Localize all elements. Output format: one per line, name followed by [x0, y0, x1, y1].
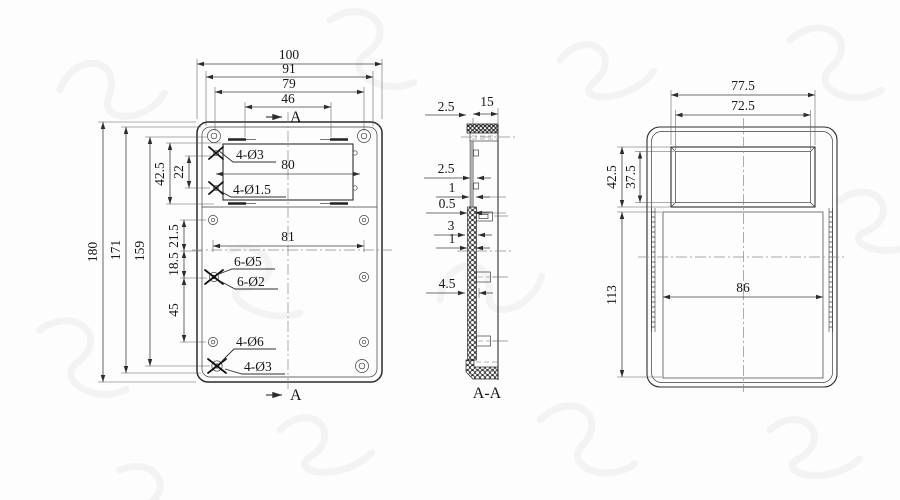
side-inner-dimension: 86 [663, 280, 823, 297]
dim-height-159: 159 [132, 241, 147, 262]
dim-step-1b: 1 [449, 231, 456, 246]
section-marker-top: A [266, 109, 302, 126]
section-letter-top: A [290, 109, 302, 126]
dim-77-5: 77.5 [731, 78, 755, 93]
side-left-dimensions: 42.5 37.5 113 [604, 147, 674, 377]
section-top-flange [467, 124, 498, 133]
dim-width-91: 91 [282, 61, 296, 76]
dim-81: 81 [281, 229, 295, 244]
dim-80: 80 [281, 157, 295, 172]
section-marker-bottom: A [266, 387, 302, 404]
front-inner-left-dimensions: 42.5 22 21.5 18.5 45 [152, 143, 221, 342]
side-ribs-right [829, 208, 833, 332]
dim-rib-4-5: 4.5 [439, 276, 456, 291]
dim-side-86: 86 [736, 280, 750, 295]
dim-22: 22 [171, 165, 186, 179]
dim-height-171: 171 [108, 240, 123, 260]
dim-depth-15: 15 [480, 94, 494, 109]
front-left-dimensions: 180 171 159 [85, 122, 210, 382]
side-top-dimensions: 77.5 72.5 [671, 78, 815, 150]
drawing-svg: 100 91 79 46 A A 180 171 159 [0, 0, 900, 500]
dim-step-1a: 1 [449, 180, 456, 195]
section-lower-wall [468, 207, 477, 360]
dim-45: 45 [166, 303, 181, 317]
dim-width-79: 79 [282, 76, 296, 91]
dim-width-46: 46 [281, 91, 295, 106]
callout-4-d3-top: 4-Ø3 [236, 147, 264, 162]
dim-21-5: 21.5 [166, 224, 181, 248]
dim-side-113: 113 [604, 285, 619, 305]
dim-step-0-5: 0.5 [439, 196, 456, 211]
dim-42-5: 42.5 [152, 162, 167, 186]
engineering-drawing-canvas: 100 91 79 46 A A 180 171 159 [0, 0, 900, 500]
section-letter-bottom: A [290, 387, 302, 404]
watermark-layer [27, 3, 900, 500]
section-upper-wall [470, 141, 473, 207]
dim-72-5: 72.5 [731, 98, 755, 113]
side-view: 77.5 72.5 42.5 37.5 113 86 [604, 78, 846, 392]
dim-overall-height: 180 [85, 242, 100, 263]
dim-side-42-5: 42.5 [604, 165, 619, 189]
dim-side-37-5: 37.5 [623, 165, 638, 189]
callout-4-d3-bottom: 4-Ø3 [244, 359, 272, 374]
front-callout-holes [205, 147, 357, 373]
side-ribs-left [652, 208, 656, 332]
section-bottom-foot [466, 360, 498, 379]
side-lower-panel [663, 212, 823, 378]
section-label: A-A [473, 385, 502, 402]
front-hole-callouts: 4-Ø3 4-Ø1.5 6-Ø5 6-Ø2 4-Ø6 4-Ø3 [218, 147, 286, 374]
callout-4-d6: 4-Ø6 [236, 334, 264, 349]
side-window [671, 147, 815, 207]
callout-6-d5: 6-Ø5 [234, 254, 262, 269]
section-view: 15 2.5 2.5 1 0.5 3 1 4.5 A-A [424, 94, 517, 402]
callout-4-d1-5: 4-Ø1.5 [233, 182, 271, 197]
dim-lip-2-5: 2.5 [438, 99, 455, 114]
callout-6-d2: 6-Ø2 [237, 274, 265, 289]
front-view: 100 91 79 46 A A 180 171 159 [85, 47, 392, 404]
dim-overall-width: 100 [279, 47, 300, 62]
dim-wall-2-5: 2.5 [438, 161, 455, 176]
dim-18-5: 18.5 [166, 252, 181, 276]
